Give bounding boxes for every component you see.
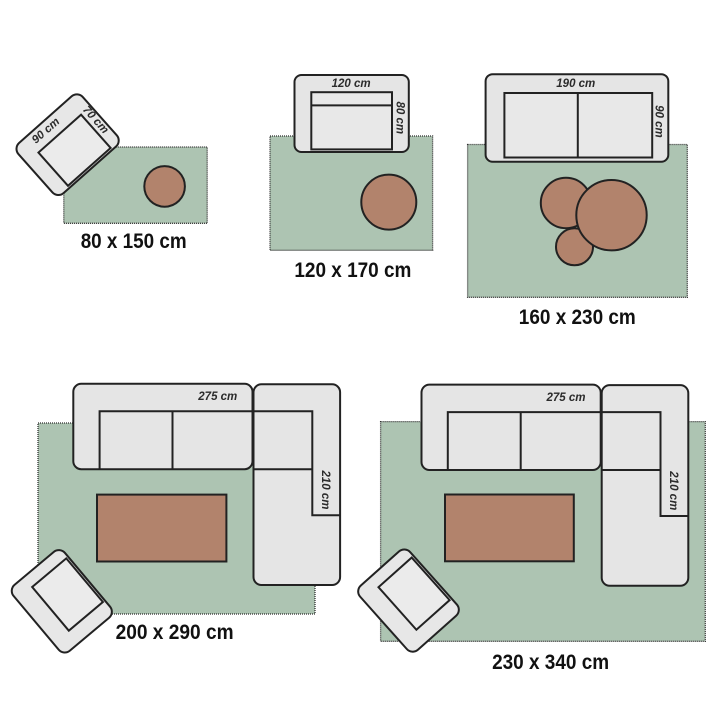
svg-text:120 cm: 120 cm: [332, 78, 371, 90]
svg-text:160 x 230 cm: 160 x 230 cm: [519, 305, 636, 329]
svg-text:90 cm: 90 cm: [653, 105, 665, 138]
svg-text:200 x 290 cm: 200 x 290 cm: [116, 620, 234, 644]
svg-text:120 x 170 cm: 120 x 170 cm: [294, 258, 411, 282]
svg-text:80 cm: 80 cm: [394, 101, 406, 134]
svg-text:190 cm: 190 cm: [556, 78, 595, 90]
svg-text:80 x 150 cm: 80 x 150 cm: [81, 229, 187, 253]
svg-text:230 x 340 cm: 230 x 340 cm: [492, 650, 609, 674]
